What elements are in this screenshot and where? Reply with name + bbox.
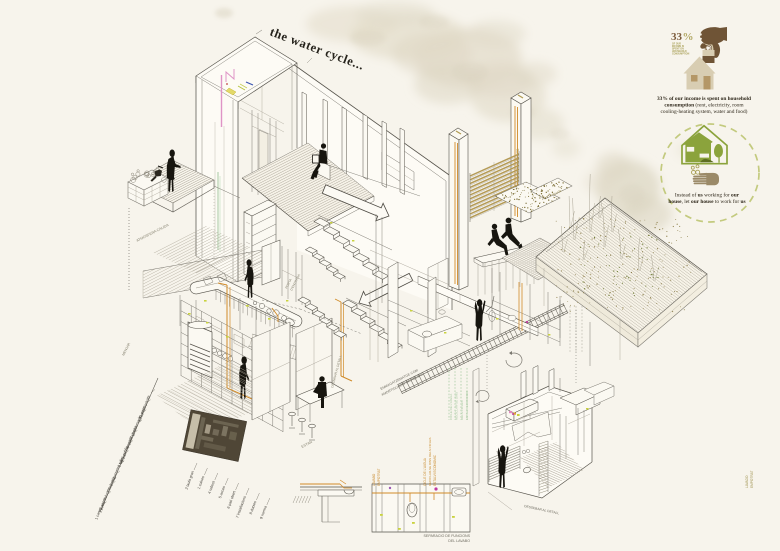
svg-text:CONSUMPTION: CONSUMPTION [672,54,690,56]
svg-text:33: 33 [671,31,683,43]
svg-text:consumption (rent, electricity: consumption (rent, electricity, room [664,101,744,108]
svg-text:33% of our income is spent on: 33% of our income is spent on household [657,96,751,102]
svg-text:CICLE DE L'AIGUA: CICLE DE L'AIGUA [423,457,427,486]
svg-text:Instead of us working for our: Instead of us working for our [675,192,740,199]
svg-text:DELS CICLES: DELS CICLES [460,400,464,420]
svg-text:LAVABO: LAVABO [372,473,376,486]
svg-text:EMPOTRAT: EMPOTRAT [377,468,381,486]
svg-text:RECICLAR-SE DINS: RECICLAR-SE DINS [454,392,458,420]
svg-text:ESTALVI ECONOMIC: ESTALVI ECONOMIC [433,454,437,486]
svg-text:house, let our house to work f: house, let our house to work for us [668,198,745,205]
svg-text:%: % [683,31,694,43]
svg-text:DEL LAVABO: DEL LAVABO [448,539,470,543]
svg-text:LAVADO: LAVADO [745,475,749,488]
svg-text:ESTALVI ECONOMIC: ESTALVI ECONOMIC [465,390,469,420]
svg-text:CICLE DE L'AIGUA: CICLE DE L'AIGUA [449,394,453,420]
svg-text:SOBREEIXIDOR FITO: SOBREEIXIDOR FITO [516,148,520,181]
svg-text:RECICLAR-SE DINS DELS CICLES: RECICLAR-SE DINS DELS CICLES [428,437,432,486]
svg-text:EMPOTRAT: EMPOTRAT [750,470,754,488]
svg-text:cooling-heating system, water: cooling-heating system, water and food) [661,108,748,115]
svg-text:SEPARACIO DE FUNCIONS: SEPARACIO DE FUNCIONS [424,534,471,538]
